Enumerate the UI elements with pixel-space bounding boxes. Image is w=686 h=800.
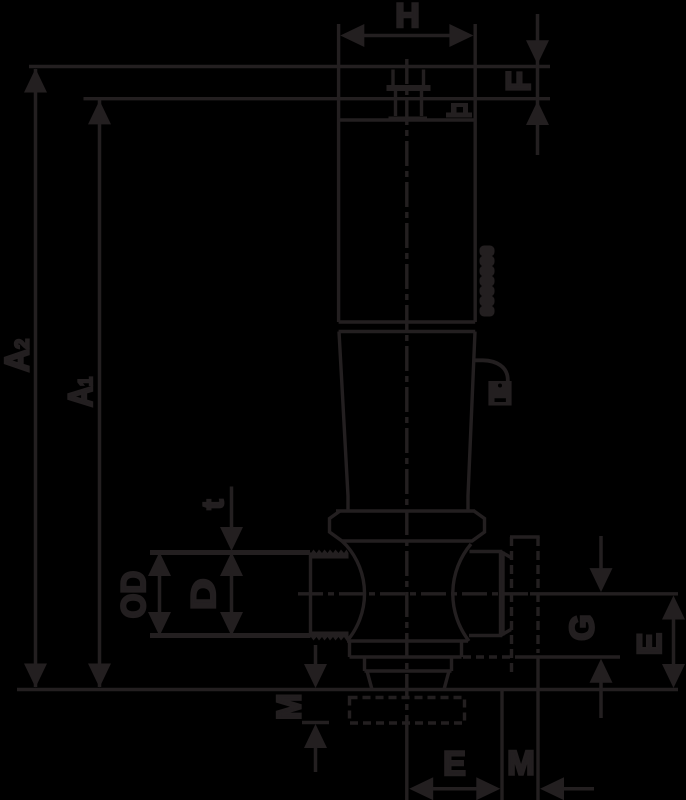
svg-text:E: E: [631, 633, 669, 656]
svg-text:D: D: [185, 579, 223, 611]
svg-text:E: E: [443, 745, 466, 783]
svg-text:F: F: [500, 71, 538, 92]
svg-text:M: M: [507, 745, 535, 783]
svg-text:A2: A2: [0, 339, 37, 372]
svg-text:A1: A1: [62, 377, 100, 407]
svg-text:OD: OD: [115, 571, 153, 619]
svg-text:G: G: [564, 614, 602, 640]
svg-text:t: t: [197, 500, 230, 510]
svg-text:H: H: [395, 0, 420, 35]
svg-text:M: M: [271, 694, 309, 721]
